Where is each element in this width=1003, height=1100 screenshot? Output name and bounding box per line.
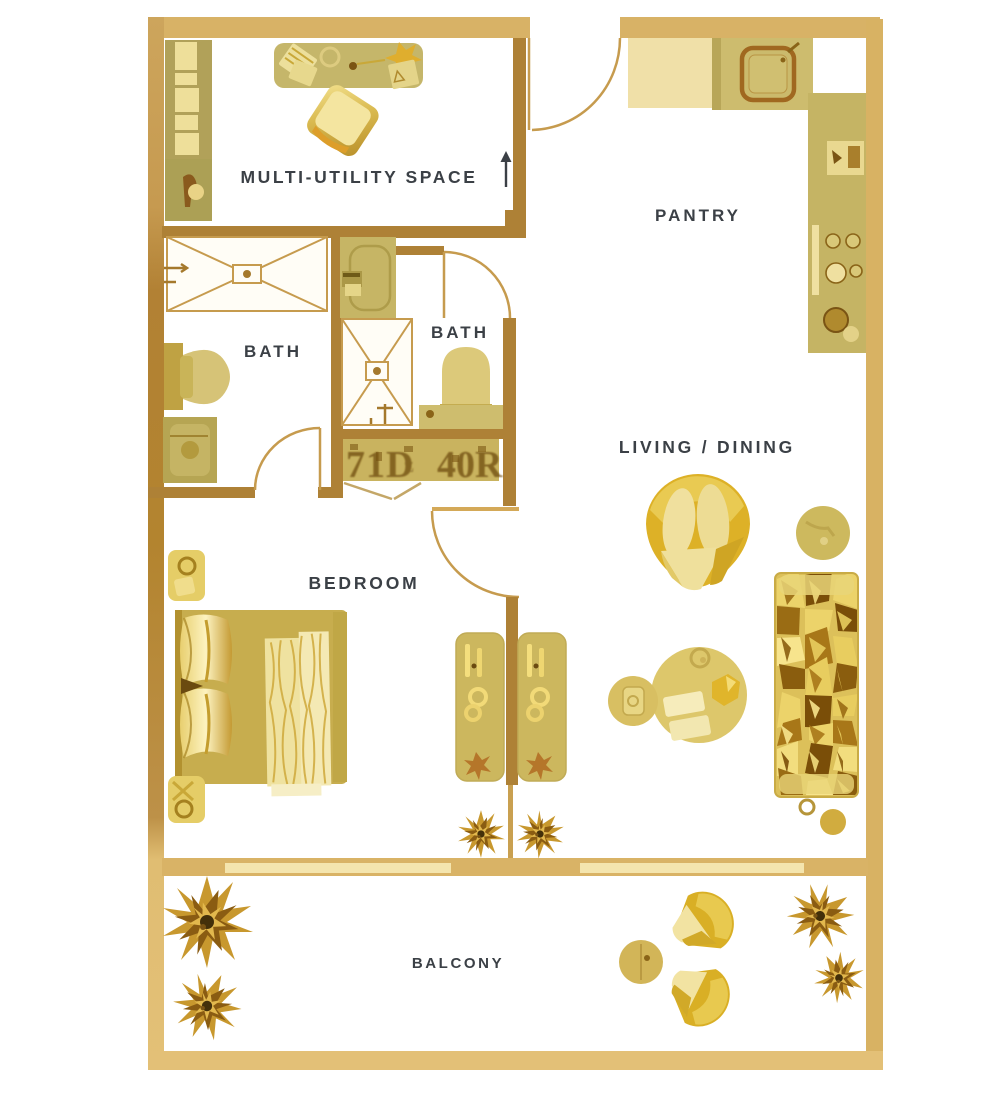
svg-text:BEDROOM: BEDROOM <box>309 573 420 593</box>
svg-text:BATH: BATH <box>431 323 489 342</box>
svg-text:LIVING / DINING: LIVING / DINING <box>619 437 795 457</box>
svg-text:MULTI-UTILITY SPACE: MULTI-UTILITY SPACE <box>240 167 477 187</box>
svg-text:z: z <box>404 452 414 477</box>
svg-text:40R: 40R <box>437 444 503 486</box>
svg-text:BATH: BATH <box>244 342 302 361</box>
svg-text:PANTRY: PANTRY <box>655 206 741 225</box>
svg-text:BALCONY: BALCONY <box>412 955 504 972</box>
